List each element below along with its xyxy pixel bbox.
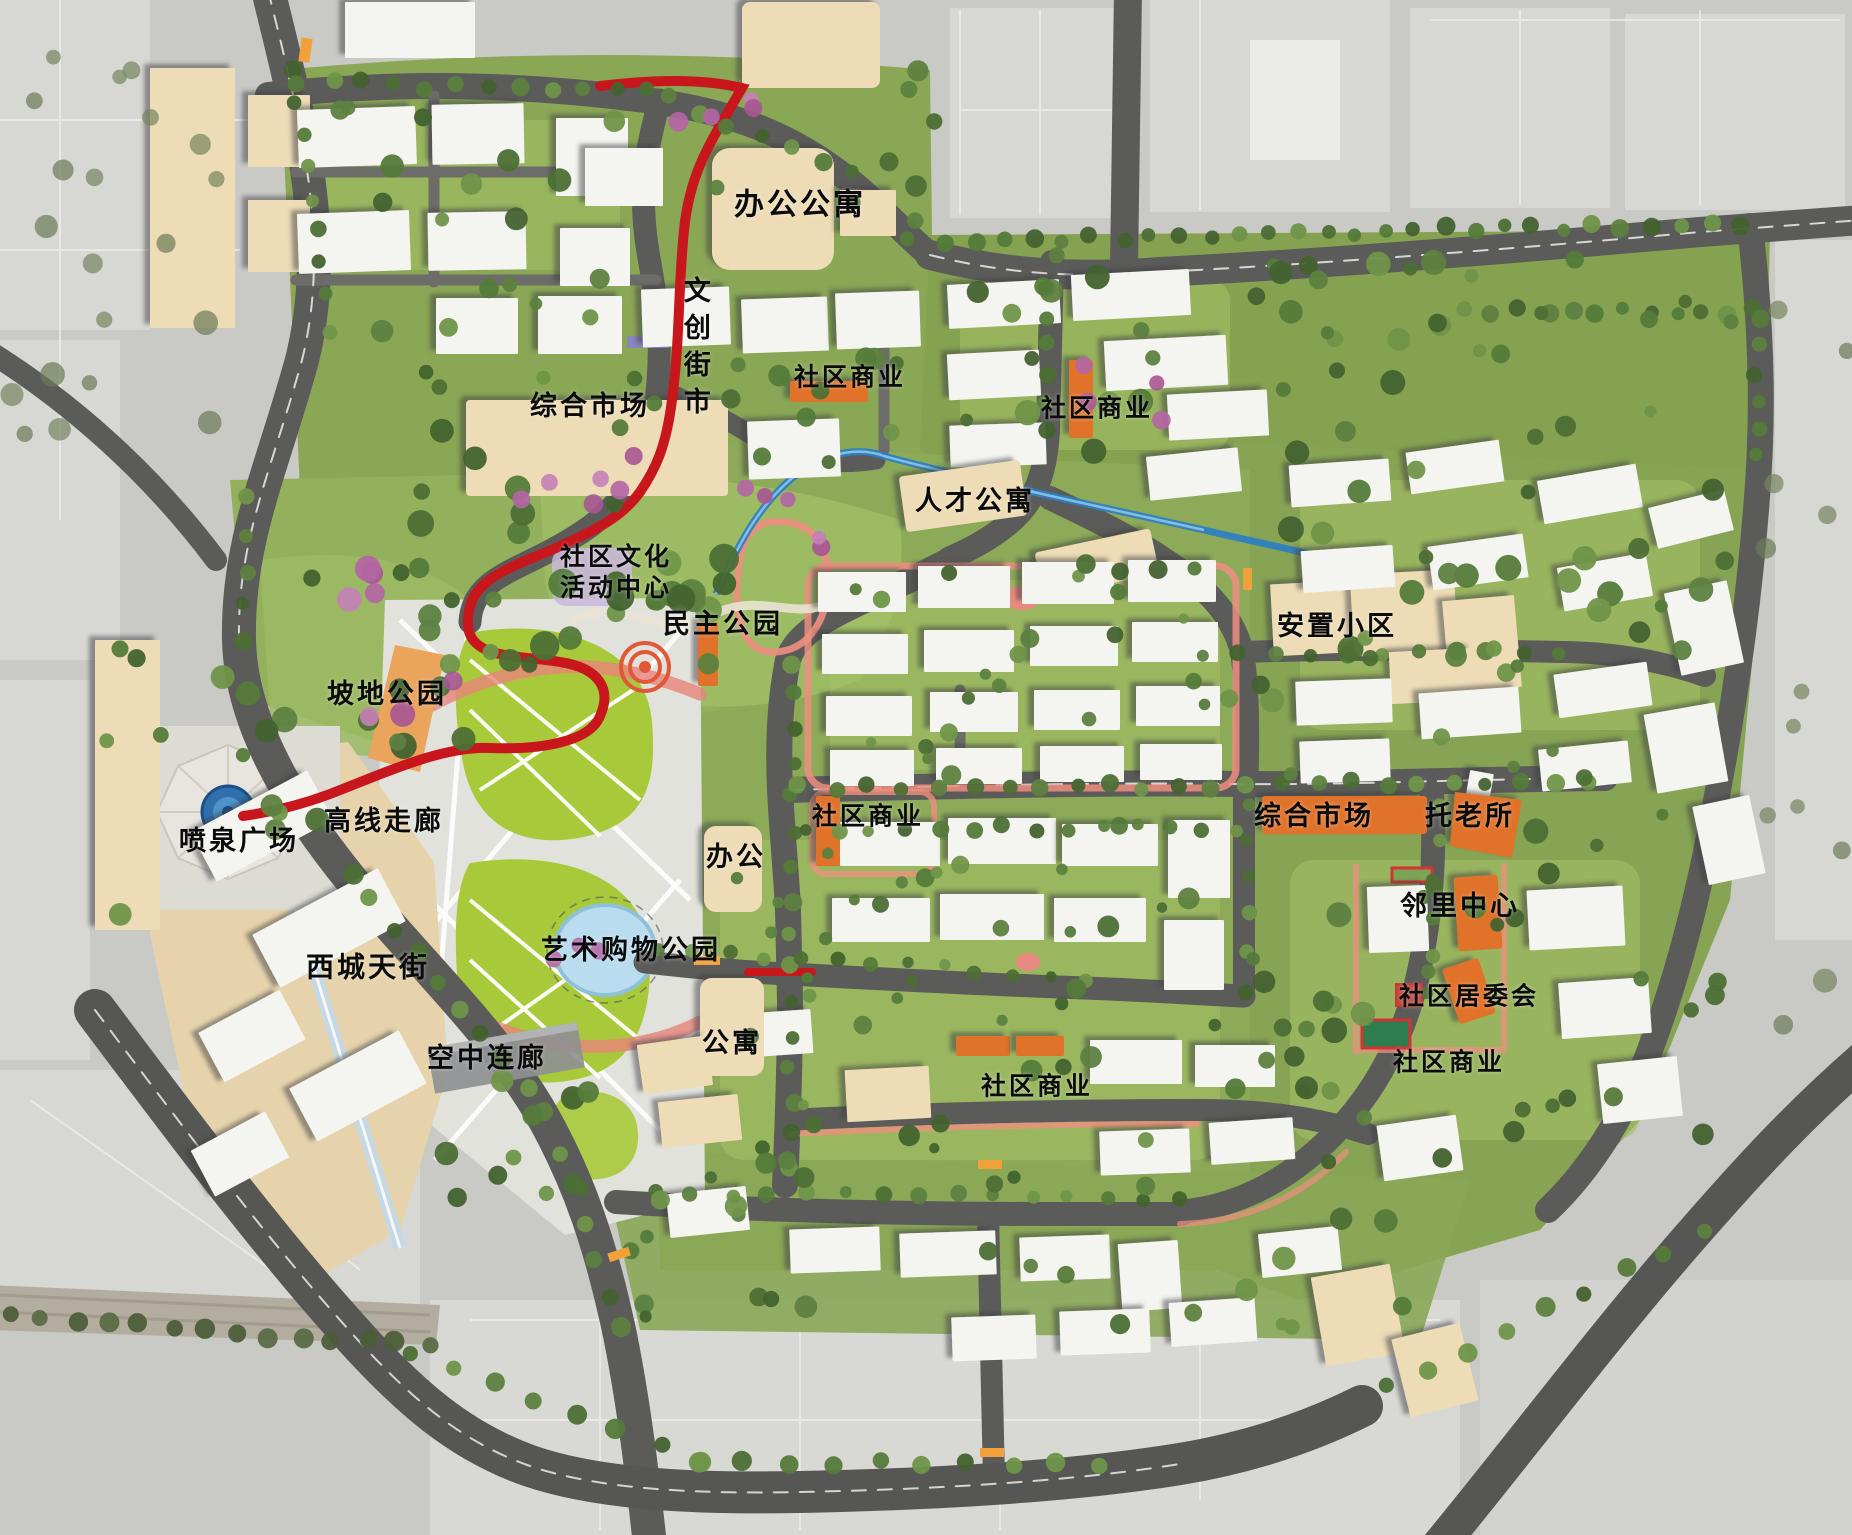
tree: [1643, 218, 1662, 237]
tree: [341, 101, 355, 115]
tree: [1419, 1362, 1437, 1380]
tree: [451, 1001, 469, 1019]
tree: [48, 418, 71, 441]
tree: [1751, 309, 1770, 328]
tree: [1433, 728, 1450, 745]
tree: [1322, 225, 1336, 239]
tree: [403, 1346, 418, 1361]
tree: [1818, 506, 1836, 524]
tree: [195, 1319, 215, 1339]
residential-building: [1062, 824, 1158, 866]
tree: [654, 1437, 670, 1453]
tree: [1209, 1019, 1222, 1032]
tree: [99, 733, 114, 748]
tree: [1285, 440, 1309, 464]
tree: [1031, 779, 1049, 797]
tree: [731, 872, 743, 884]
tree: [440, 654, 460, 674]
tree: [765, 926, 777, 938]
tree: [788, 776, 806, 794]
residential-building: [924, 630, 1014, 672]
tree: [40, 362, 65, 387]
residential-building: [822, 634, 908, 674]
tree: [582, 309, 598, 325]
tree: [284, 61, 302, 79]
tree: [918, 739, 933, 754]
residential-building-cream: [742, 2, 880, 88]
tree: [1445, 645, 1467, 667]
tree: [112, 70, 127, 85]
tree: [479, 279, 499, 299]
tree: [1388, 328, 1411, 351]
tree: [69, 1312, 88, 1331]
residential-building: [1644, 702, 1729, 793]
tree: [1021, 1060, 1043, 1082]
tree: [236, 681, 260, 705]
tree: [1640, 310, 1658, 328]
tree: [506, 1150, 522, 1166]
tree: [1046, 971, 1057, 982]
tree: [1400, 580, 1425, 605]
residential-building: [1526, 886, 1625, 951]
tree: [1356, 1110, 1372, 1126]
tree: [797, 408, 816, 427]
tree: [802, 989, 816, 1003]
commercial-building: [1016, 1036, 1064, 1056]
tree: [1366, 252, 1391, 277]
tree: [1379, 224, 1393, 238]
residential-building: [741, 297, 829, 354]
tree: [384, 1331, 405, 1352]
tree: [640, 1230, 654, 1244]
tree: [1054, 235, 1068, 249]
tree: [1284, 767, 1298, 781]
tree: [1007, 1171, 1020, 1184]
tree: [1752, 421, 1768, 437]
tree: [1572, 546, 1596, 570]
residential-building-cream: [150, 68, 235, 328]
tree: [1347, 480, 1370, 503]
tree: [1055, 1059, 1071, 1075]
tree: [1002, 304, 1021, 323]
tree: [1674, 219, 1689, 234]
tree: [166, 1320, 183, 1337]
tree: [190, 134, 211, 155]
tree: [1232, 226, 1248, 242]
tree: [862, 826, 873, 837]
tree: [1760, 807, 1776, 823]
tree: [53, 160, 74, 181]
tree: [520, 1079, 538, 1097]
tree: [505, 207, 528, 230]
tree: [511, 78, 529, 96]
tree: [1405, 222, 1419, 236]
residential-building: [1034, 690, 1120, 730]
tree: [1055, 997, 1068, 1010]
tree: [1242, 905, 1257, 920]
tree: [1178, 613, 1188, 623]
tree: [646, 590, 667, 611]
tree: [1380, 777, 1397, 794]
tree: [463, 447, 487, 471]
tree: [1101, 1191, 1115, 1205]
tree: [850, 583, 862, 595]
tree: [698, 653, 719, 674]
tree: [1304, 649, 1317, 662]
tree: [1136, 1177, 1155, 1196]
tree: [1566, 251, 1584, 269]
tree: [1689, 577, 1714, 602]
tree: [900, 81, 917, 98]
tree: [1024, 351, 1039, 366]
tree: [758, 1186, 775, 1203]
tree: [757, 488, 773, 504]
tree: [725, 1195, 747, 1217]
tree: [979, 1242, 998, 1261]
tree: [371, 320, 393, 342]
tree: [811, 381, 829, 399]
tree: [1517, 645, 1532, 660]
tree: [819, 932, 832, 945]
tree: [26, 92, 43, 109]
tree: [896, 876, 908, 888]
tree: [1407, 461, 1425, 479]
residential-building: [1289, 459, 1392, 508]
tree: [1679, 295, 1692, 308]
residential-building: [826, 696, 912, 736]
residential-building: [1558, 977, 1652, 1039]
tree: [1082, 712, 1097, 727]
tree: [521, 657, 537, 673]
tree: [966, 822, 983, 839]
tree: [873, 591, 890, 608]
tree: [910, 1187, 927, 1204]
residential-building-cream: [658, 1094, 742, 1148]
residential-building: [1059, 1308, 1150, 1355]
tree: [822, 455, 836, 469]
tree: [906, 975, 918, 987]
tree: [1, 383, 24, 406]
tree: [1251, 676, 1270, 695]
residential-building: [1376, 1115, 1463, 1182]
tree: [940, 723, 958, 741]
tree: [306, 194, 319, 207]
tree: [755, 129, 769, 143]
tree: [1225, 1078, 1246, 1099]
tree: [1010, 646, 1027, 663]
residential-building: [585, 148, 663, 206]
tree: [858, 776, 874, 792]
tree: [1421, 987, 1434, 1000]
residential-building: [1118, 1240, 1183, 1312]
tree: [646, 395, 662, 411]
tree: [1062, 824, 1076, 838]
tree: [1107, 626, 1124, 643]
tree: [303, 570, 320, 587]
tree: [794, 1167, 815, 1188]
tree: [845, 195, 860, 210]
tree: [128, 1313, 147, 1332]
tree: [1297, 1085, 1310, 1098]
tree: [1655, 1246, 1671, 1262]
tree: [82, 375, 97, 390]
tree: [1039, 366, 1056, 383]
tree: [525, 1393, 542, 1410]
tree: [1629, 621, 1651, 643]
tree: [986, 1175, 1003, 1192]
tree: [1199, 699, 1211, 711]
tree: [1097, 916, 1119, 938]
tree: [651, 1190, 670, 1209]
tree: [1110, 584, 1126, 600]
residential-building-cream: [637, 1035, 713, 1094]
tree: [899, 1125, 920, 1146]
tree: [1585, 304, 1603, 322]
tree: [812, 531, 826, 545]
tree: [548, 569, 577, 598]
tree: [381, 154, 404, 177]
tree: [471, 1025, 488, 1042]
tree: [936, 235, 954, 253]
tree: [883, 424, 900, 441]
tree: [545, 82, 561, 98]
tree: [1171, 778, 1187, 794]
tree: [1499, 1323, 1516, 1340]
tree: [640, 1310, 652, 1322]
tree: [802, 972, 813, 983]
tree: [1521, 485, 1536, 500]
tree: [993, 816, 1010, 833]
tree: [1813, 969, 1837, 993]
tree: [768, 365, 790, 387]
tree: [1351, 1002, 1375, 1026]
tree: [890, 356, 904, 370]
tree: [1138, 1132, 1154, 1148]
tree: [512, 490, 530, 508]
tree: [414, 108, 432, 126]
tree: [439, 318, 458, 337]
tree: [1616, 302, 1629, 315]
tree: [1756, 538, 1776, 558]
tree: [1060, 1190, 1072, 1202]
tree: [1457, 301, 1473, 317]
tree: [1078, 393, 1097, 412]
tree: [922, 753, 933, 764]
tree: [393, 564, 410, 581]
tree: [142, 109, 159, 126]
tree: [1272, 1247, 1295, 1270]
tree: [1507, 761, 1520, 774]
tree: [993, 920, 1010, 937]
tree: [255, 719, 279, 743]
tree: [1027, 1191, 1040, 1204]
tree: [800, 824, 812, 836]
tree: [1546, 745, 1558, 757]
tree: [1618, 1258, 1637, 1277]
tree: [713, 572, 737, 596]
tree: [604, 110, 626, 132]
tree: [941, 565, 957, 581]
residential-building-cream: [1311, 1264, 1405, 1367]
tree: [112, 640, 129, 657]
residential-building: [1301, 545, 1396, 593]
tree: [783, 860, 798, 875]
master-plan-map: 办公公寓文创街市综合市场社区商业社区商业人才公寓社区文化活动中心民主公园坡地公园…: [0, 0, 1852, 1535]
tree: [1559, 1090, 1577, 1108]
tree: [1311, 522, 1334, 545]
tree: [1393, 1297, 1412, 1316]
tree: [926, 113, 942, 129]
tree: [957, 1454, 974, 1471]
tree: [1358, 630, 1374, 646]
tree: [625, 447, 643, 465]
tree: [1038, 335, 1054, 351]
residential-building-cream: [704, 826, 762, 912]
tree: [784, 995, 798, 1009]
tree: [387, 923, 402, 938]
residential-building: [1022, 562, 1114, 604]
tree: [778, 1151, 796, 1169]
tree: [432, 379, 448, 395]
tree: [1046, 1453, 1065, 1472]
residential-building: [1030, 626, 1118, 666]
tree: [236, 748, 250, 762]
tree: [1628, 538, 1649, 559]
tree: [365, 583, 385, 603]
tree: [481, 79, 497, 95]
tree: [1752, 395, 1765, 408]
tree: [1278, 516, 1304, 542]
tree: [1098, 820, 1110, 832]
tree: [1321, 1154, 1336, 1169]
tree: [731, 357, 746, 372]
tree: [1261, 225, 1276, 240]
tree: [1503, 1121, 1524, 1142]
tree: [782, 927, 796, 941]
tree: [1576, 769, 1593, 786]
tree: [1101, 774, 1119, 792]
residential-building: [951, 1315, 1036, 1362]
tree: [1172, 1191, 1187, 1206]
tree: [1746, 367, 1762, 383]
tree: [772, 897, 784, 909]
tree: [1141, 228, 1155, 242]
tree: [1080, 1046, 1102, 1068]
tree: [483, 644, 499, 660]
tree: [522, 1105, 543, 1126]
tree: [732, 1451, 752, 1471]
tree: [718, 119, 734, 135]
tree: [685, 944, 699, 958]
tree: [794, 951, 809, 966]
tree: [873, 1452, 889, 1468]
tree: [1322, 1082, 1340, 1100]
tree: [786, 684, 802, 700]
tree: [962, 692, 975, 705]
tree: [239, 529, 253, 543]
tree: [1276, 382, 1291, 397]
tree: [876, 1186, 893, 1203]
residential-building: [840, 822, 940, 866]
tree: [1335, 421, 1356, 442]
residential-building: [949, 422, 1046, 467]
tree: [287, 95, 302, 110]
tree: [1313, 991, 1334, 1012]
tree: [1039, 312, 1054, 327]
tree: [1408, 776, 1424, 792]
tree: [1604, 1087, 1623, 1106]
tree: [1512, 773, 1529, 790]
residential-building: [789, 1226, 880, 1273]
tree: [211, 665, 235, 689]
tree: [872, 896, 889, 913]
tree: [1026, 229, 1045, 248]
tree: [960, 414, 973, 427]
tree: [96, 312, 112, 328]
tree: [1565, 302, 1583, 320]
tree: [352, 72, 369, 89]
tree: [1006, 1458, 1022, 1474]
tree: [950, 1185, 967, 1202]
tree: [744, 99, 762, 117]
tree: [757, 953, 771, 967]
residential-building: [940, 894, 1044, 940]
tree: [1428, 314, 1447, 333]
tree: [1029, 824, 1044, 839]
tree: [128, 649, 146, 667]
tree: [1057, 1266, 1075, 1284]
tree: [430, 419, 454, 443]
tree: [1330, 1208, 1352, 1230]
tree: [939, 959, 950, 970]
tree: [389, 678, 410, 699]
residential-building-cream: [95, 640, 160, 930]
tree: [530, 298, 543, 311]
tree: [1326, 902, 1351, 927]
tree: [1157, 902, 1168, 913]
tree: [1587, 598, 1611, 622]
tree: [997, 232, 1013, 248]
tree: [99, 1312, 119, 1332]
tree: [1505, 909, 1524, 928]
tree: [1557, 224, 1570, 237]
tree: [1205, 231, 1219, 245]
tree: [1481, 305, 1499, 323]
tree: [1522, 217, 1539, 234]
tree: [1426, 911, 1440, 925]
tree: [1490, 918, 1504, 932]
residential-building: [641, 286, 731, 347]
tree: [1752, 337, 1767, 352]
tree: [898, 822, 912, 836]
tree: [1576, 1287, 1591, 1302]
tree: [951, 856, 969, 874]
tree: [590, 269, 610, 289]
tree: [855, 347, 877, 369]
tree: [892, 992, 904, 1004]
tree: [832, 824, 848, 840]
tree: [929, 1143, 939, 1153]
tree: [1229, 645, 1246, 662]
tree: [585, 1251, 602, 1268]
tree: [360, 1332, 377, 1349]
tree: [301, 159, 315, 173]
tree: [373, 193, 392, 212]
tree: [1786, 719, 1801, 734]
residential-building: [1169, 1297, 1258, 1347]
tree: [1276, 1318, 1289, 1331]
tree: [1769, 301, 1788, 320]
